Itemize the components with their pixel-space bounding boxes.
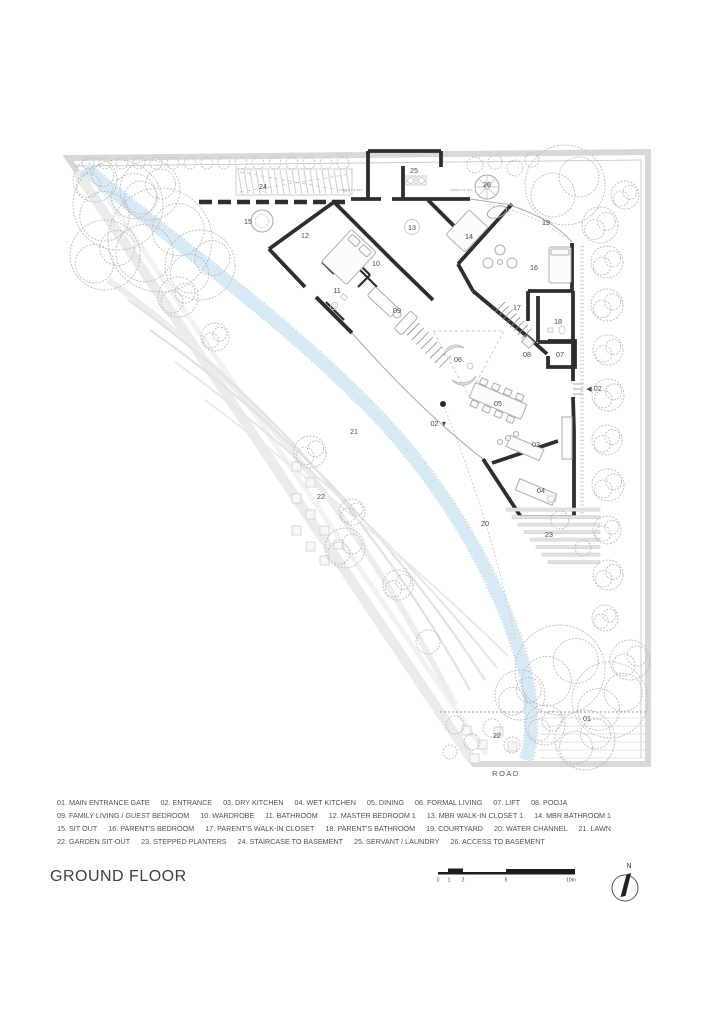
- room-label-08: 08: [523, 350, 531, 359]
- paver: [306, 478, 315, 487]
- paver: [508, 742, 517, 751]
- room-label-10: 10: [372, 259, 380, 268]
- legend-item-14: 14. MBR BATHROOM 1: [534, 811, 611, 820]
- room-label-14: 14: [465, 232, 473, 241]
- road-strip: [540, 718, 645, 758]
- room-label-09: 09: [393, 306, 401, 315]
- legend-item-04: 04. WET KITCHEN: [295, 798, 356, 807]
- legend-item-03: 03. DRY KITCHEN: [223, 798, 283, 807]
- north-label: N: [626, 863, 631, 870]
- legend-item-16: 16. PARENT'S BEDROOM: [108, 824, 194, 833]
- room-label-22: 22: [493, 731, 501, 740]
- tree: [592, 469, 624, 501]
- room-label-22: 22: [317, 492, 325, 501]
- north-needle: [621, 873, 632, 897]
- tree: [443, 745, 457, 759]
- legend-item-17: 17. PARENT'S WALK-IN CLOSET: [205, 824, 314, 833]
- room-label-04: 04: [537, 486, 545, 495]
- paver: [320, 526, 329, 535]
- legend-item-21: 21. LAWN: [578, 824, 611, 833]
- paver: [462, 726, 471, 735]
- legend-row: 22. GARDEN SIT-OUT23. STEPPED PLANTERS24…: [57, 835, 677, 848]
- scale-tick-labels: 012510m: [437, 878, 576, 884]
- tree: [611, 181, 639, 209]
- tree: [582, 207, 618, 243]
- sit-out-planter: [251, 210, 273, 232]
- room-label-03: 03: [532, 440, 540, 449]
- paver: [292, 526, 301, 535]
- scale-bar: 012510m: [437, 869, 576, 884]
- legend: 01. MAIN ENTRANCE GATE02. ENTRANCE03. DR…: [57, 796, 677, 848]
- paver: [478, 740, 487, 749]
- tree: [591, 246, 623, 278]
- room-label-20: 20: [481, 519, 489, 528]
- bed-parents: [483, 245, 571, 283]
- stair-hatch-24: [238, 170, 350, 194]
- pooja-shrine: [522, 336, 535, 349]
- room-label-23: 23: [545, 530, 553, 539]
- legend-item-18: 18. PARENT'S BATHROOM: [325, 824, 415, 833]
- tree: [610, 640, 650, 680]
- paver: [292, 462, 301, 471]
- tree: [525, 145, 605, 225]
- plan-title: GROUND FLOOR: [50, 868, 187, 886]
- north-arrow: N: [612, 863, 638, 901]
- room-label-16: 16: [530, 263, 538, 272]
- legend-item-10: 10. WARDROBE: [200, 811, 254, 820]
- bath-counter-14: [446, 210, 488, 253]
- laundry-machines: [406, 176, 426, 185]
- room-label-13: 13: [408, 223, 416, 232]
- legend-item-25: 25. SERVANT / LAUNDRY: [354, 837, 439, 846]
- room-label-01: 01: [583, 714, 591, 723]
- tree: [591, 289, 623, 321]
- paver: [306, 510, 315, 519]
- legend-item-26: 26. ACCESS TO BASEMENT: [450, 837, 544, 846]
- room-label-07: 07: [556, 350, 564, 359]
- tree: [572, 662, 648, 738]
- scale-tick: 5: [505, 878, 508, 884]
- legend-row: 15. SIT OUT16. PARENT'S BEDROOM17. PAREN…: [57, 822, 677, 835]
- legend-row: 09. FAMILY LIVING / GUEST BEDROOM10. WAR…: [57, 809, 677, 822]
- room-label-25: 25: [410, 166, 418, 175]
- room-label-11: 11: [333, 286, 340, 295]
- legend-item-20: 20. WATER CHANNEL: [494, 824, 568, 833]
- tree: [507, 160, 523, 176]
- room-label-OPENTOSKY: OPEN TO SKY: [341, 188, 363, 192]
- stepped-planters: [506, 508, 600, 564]
- room-label-24: 24: [259, 182, 267, 191]
- room-label-06: 06: [454, 355, 462, 364]
- legend-item-13: 13. MBR WALK-IN CLOSET 1: [427, 811, 523, 820]
- entry-point-dot: [440, 401, 446, 407]
- room-label-26: 26: [483, 180, 491, 189]
- drawing-sheet: 242526OPEN TO SKYOPEN TO SKY151213141910…: [0, 0, 724, 1024]
- scale-tick: 10m: [566, 878, 576, 884]
- legend-item-15: 15. SIT OUT: [57, 824, 97, 833]
- tree: [467, 157, 483, 173]
- legend-item-07: 07. LIFT: [493, 798, 520, 807]
- legend-row: 01. MAIN ENTRANCE GATE02. ENTRANCE03. DR…: [57, 796, 677, 809]
- paver: [292, 494, 301, 503]
- room-label-OPENTOSKY: OPEN TO SKY: [451, 188, 473, 192]
- legend-item-12: 12. MASTER BEDROOM 1: [329, 811, 416, 820]
- room-label-02: ◀ 02: [586, 384, 602, 393]
- legend-item-09: 09. FAMILY LIVING / GUEST BEDROOM: [57, 811, 189, 820]
- legend-item-19: 19. COURTYARD: [426, 824, 483, 833]
- tree: [592, 425, 622, 455]
- scale-tick: 1: [448, 878, 451, 884]
- legend-item-24: 24. STAIRCASE TO BASEMENT: [238, 837, 343, 846]
- paver: [306, 542, 315, 551]
- room-label-02: 02 ▼: [430, 419, 447, 428]
- legend-item-02: 02. ENTRANCE: [161, 798, 213, 807]
- room-label-19: 19: [542, 218, 550, 227]
- legend-item-22: 22. GARDEN SIT-OUT: [57, 837, 130, 846]
- scale-tick: 0: [437, 878, 440, 884]
- kitchen-counters: [498, 417, 573, 505]
- legend-item-06: 06. FORMAL LIVING: [415, 798, 482, 807]
- legend-item-23: 23. STEPPED PLANTERS: [141, 837, 226, 846]
- road-label: ROAD: [466, 769, 546, 778]
- room-label-15: 15: [244, 217, 252, 226]
- scale-tick: 2: [462, 878, 465, 884]
- tree: [593, 560, 623, 590]
- plan-labels: 242526OPEN TO SKYOPEN TO SKY151213141910…: [244, 166, 602, 740]
- tree: [592, 605, 618, 631]
- room-label-18: 18: [554, 317, 562, 326]
- paver: [470, 754, 479, 763]
- room-label-12: 12: [301, 231, 309, 240]
- room-label-17: 17: [513, 303, 521, 312]
- tree: [593, 335, 623, 365]
- legend-item-11: 11. BATHROOM: [265, 811, 317, 820]
- room-label-21: 21: [350, 427, 358, 436]
- legend-item-01: 01. MAIN ENTRANCE GATE: [57, 798, 150, 807]
- legend-item-08: 08. POOJA: [531, 798, 567, 807]
- room-label-05: 05: [494, 399, 502, 408]
- staircase-to-basement: [236, 169, 352, 195]
- legend-item-05: 05. DINING: [367, 798, 404, 807]
